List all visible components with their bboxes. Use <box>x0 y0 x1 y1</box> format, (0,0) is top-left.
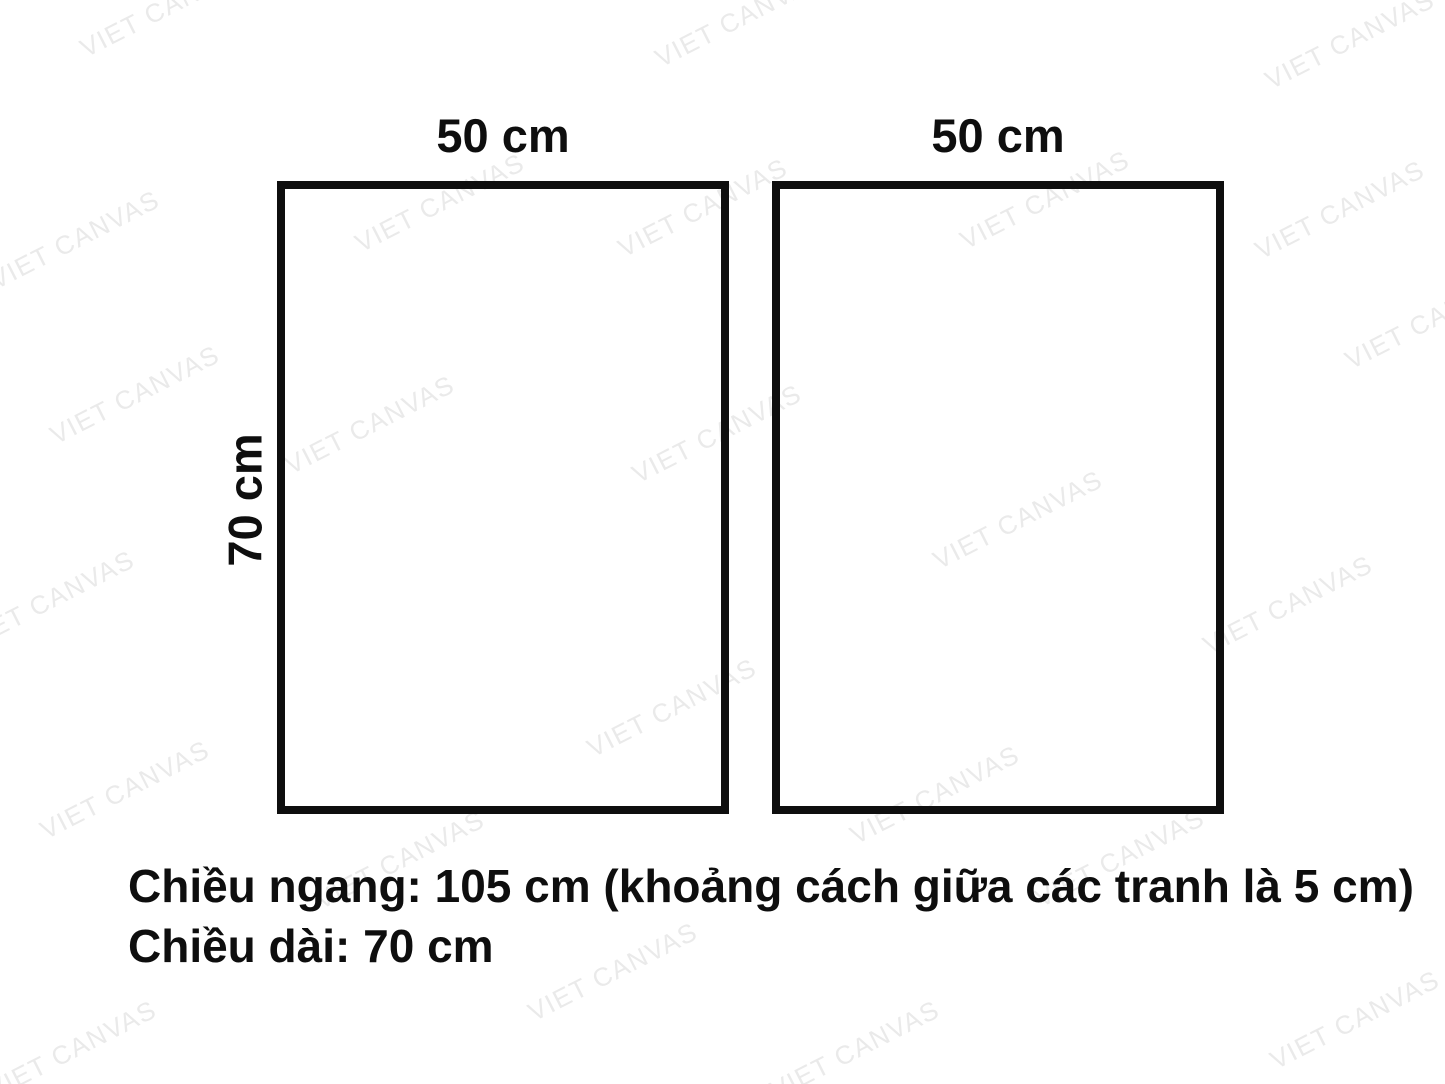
canvas-panel-right <box>772 181 1224 814</box>
panel-height-label: 70 cm <box>218 433 273 566</box>
watermark-text: VIET CANVAS <box>650 0 830 74</box>
watermark-text: VIET CANVAS <box>0 544 140 656</box>
watermark-text: VIET CANVAS <box>1265 964 1445 1076</box>
watermark-text: VIET CANVAS <box>0 994 162 1084</box>
dimension-notes: Chiều ngang: 105 cm (khoảng cách giữa cá… <box>128 856 1414 976</box>
watermark-text: VIET CANVAS <box>75 0 255 64</box>
watermark-text: VIET CANVAS <box>1198 549 1378 661</box>
dimension-diagram: VIET CANVASVIET CANVASVIET CANVASVIET CA… <box>0 0 1445 1084</box>
panel-right-width-label: 50 cm <box>772 109 1224 163</box>
watermark-text: VIET CANVAS <box>1250 154 1430 266</box>
panel-left-width-label: 50 cm <box>277 109 729 163</box>
watermark-text: VIET CANVAS <box>1340 264 1445 376</box>
canvas-panel-left <box>277 181 729 814</box>
watermark-text: VIET CANVAS <box>45 339 225 451</box>
note-vertical-dimension: Chiều dài: 70 cm <box>128 916 1414 976</box>
note-horizontal-dimension: Chiều ngang: 105 cm (khoảng cách giữa cá… <box>128 856 1414 916</box>
watermark-text: VIET CANVAS <box>0 184 165 296</box>
watermark-text: VIET CANVAS <box>35 734 215 846</box>
watermark-text: VIET CANVAS <box>765 994 945 1084</box>
watermark-text: VIET CANVAS <box>1260 0 1440 96</box>
